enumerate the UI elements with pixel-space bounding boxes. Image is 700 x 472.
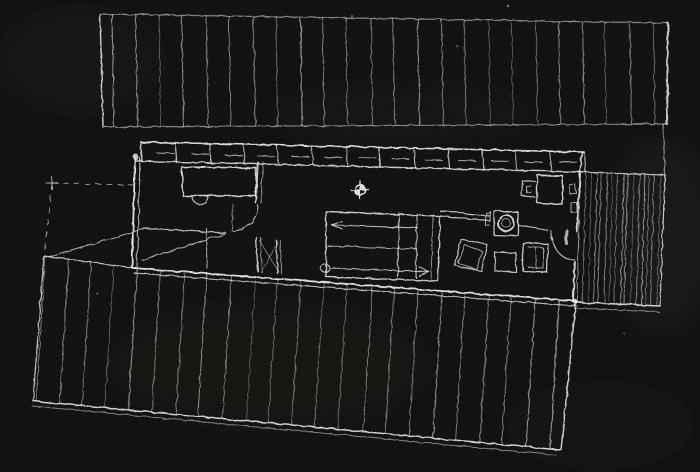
film-grain-overlay [0,0,700,472]
floor-plan-svg [0,0,700,472]
floor-plan-sketch [0,0,700,472]
